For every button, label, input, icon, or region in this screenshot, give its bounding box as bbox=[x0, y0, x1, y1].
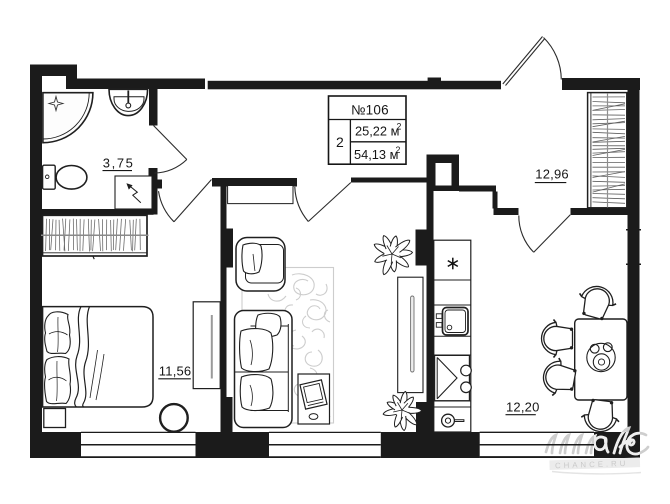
svg-text:2: 2 bbox=[336, 134, 344, 150]
svg-text:11,56: 11,56 bbox=[159, 364, 192, 379]
svg-text:3,75: 3,75 bbox=[103, 156, 135, 171]
svg-text:2: 2 bbox=[396, 145, 401, 155]
svg-text:54,13 м: 54,13 м bbox=[354, 147, 398, 162]
svg-text:№106: №106 bbox=[351, 103, 389, 118]
svg-text:12,96: 12,96 bbox=[535, 167, 569, 182]
svg-text:2: 2 bbox=[397, 122, 402, 132]
svg-text:12,20: 12,20 bbox=[506, 400, 540, 415]
svg-text:25,22 м: 25,22 м bbox=[355, 124, 399, 139]
